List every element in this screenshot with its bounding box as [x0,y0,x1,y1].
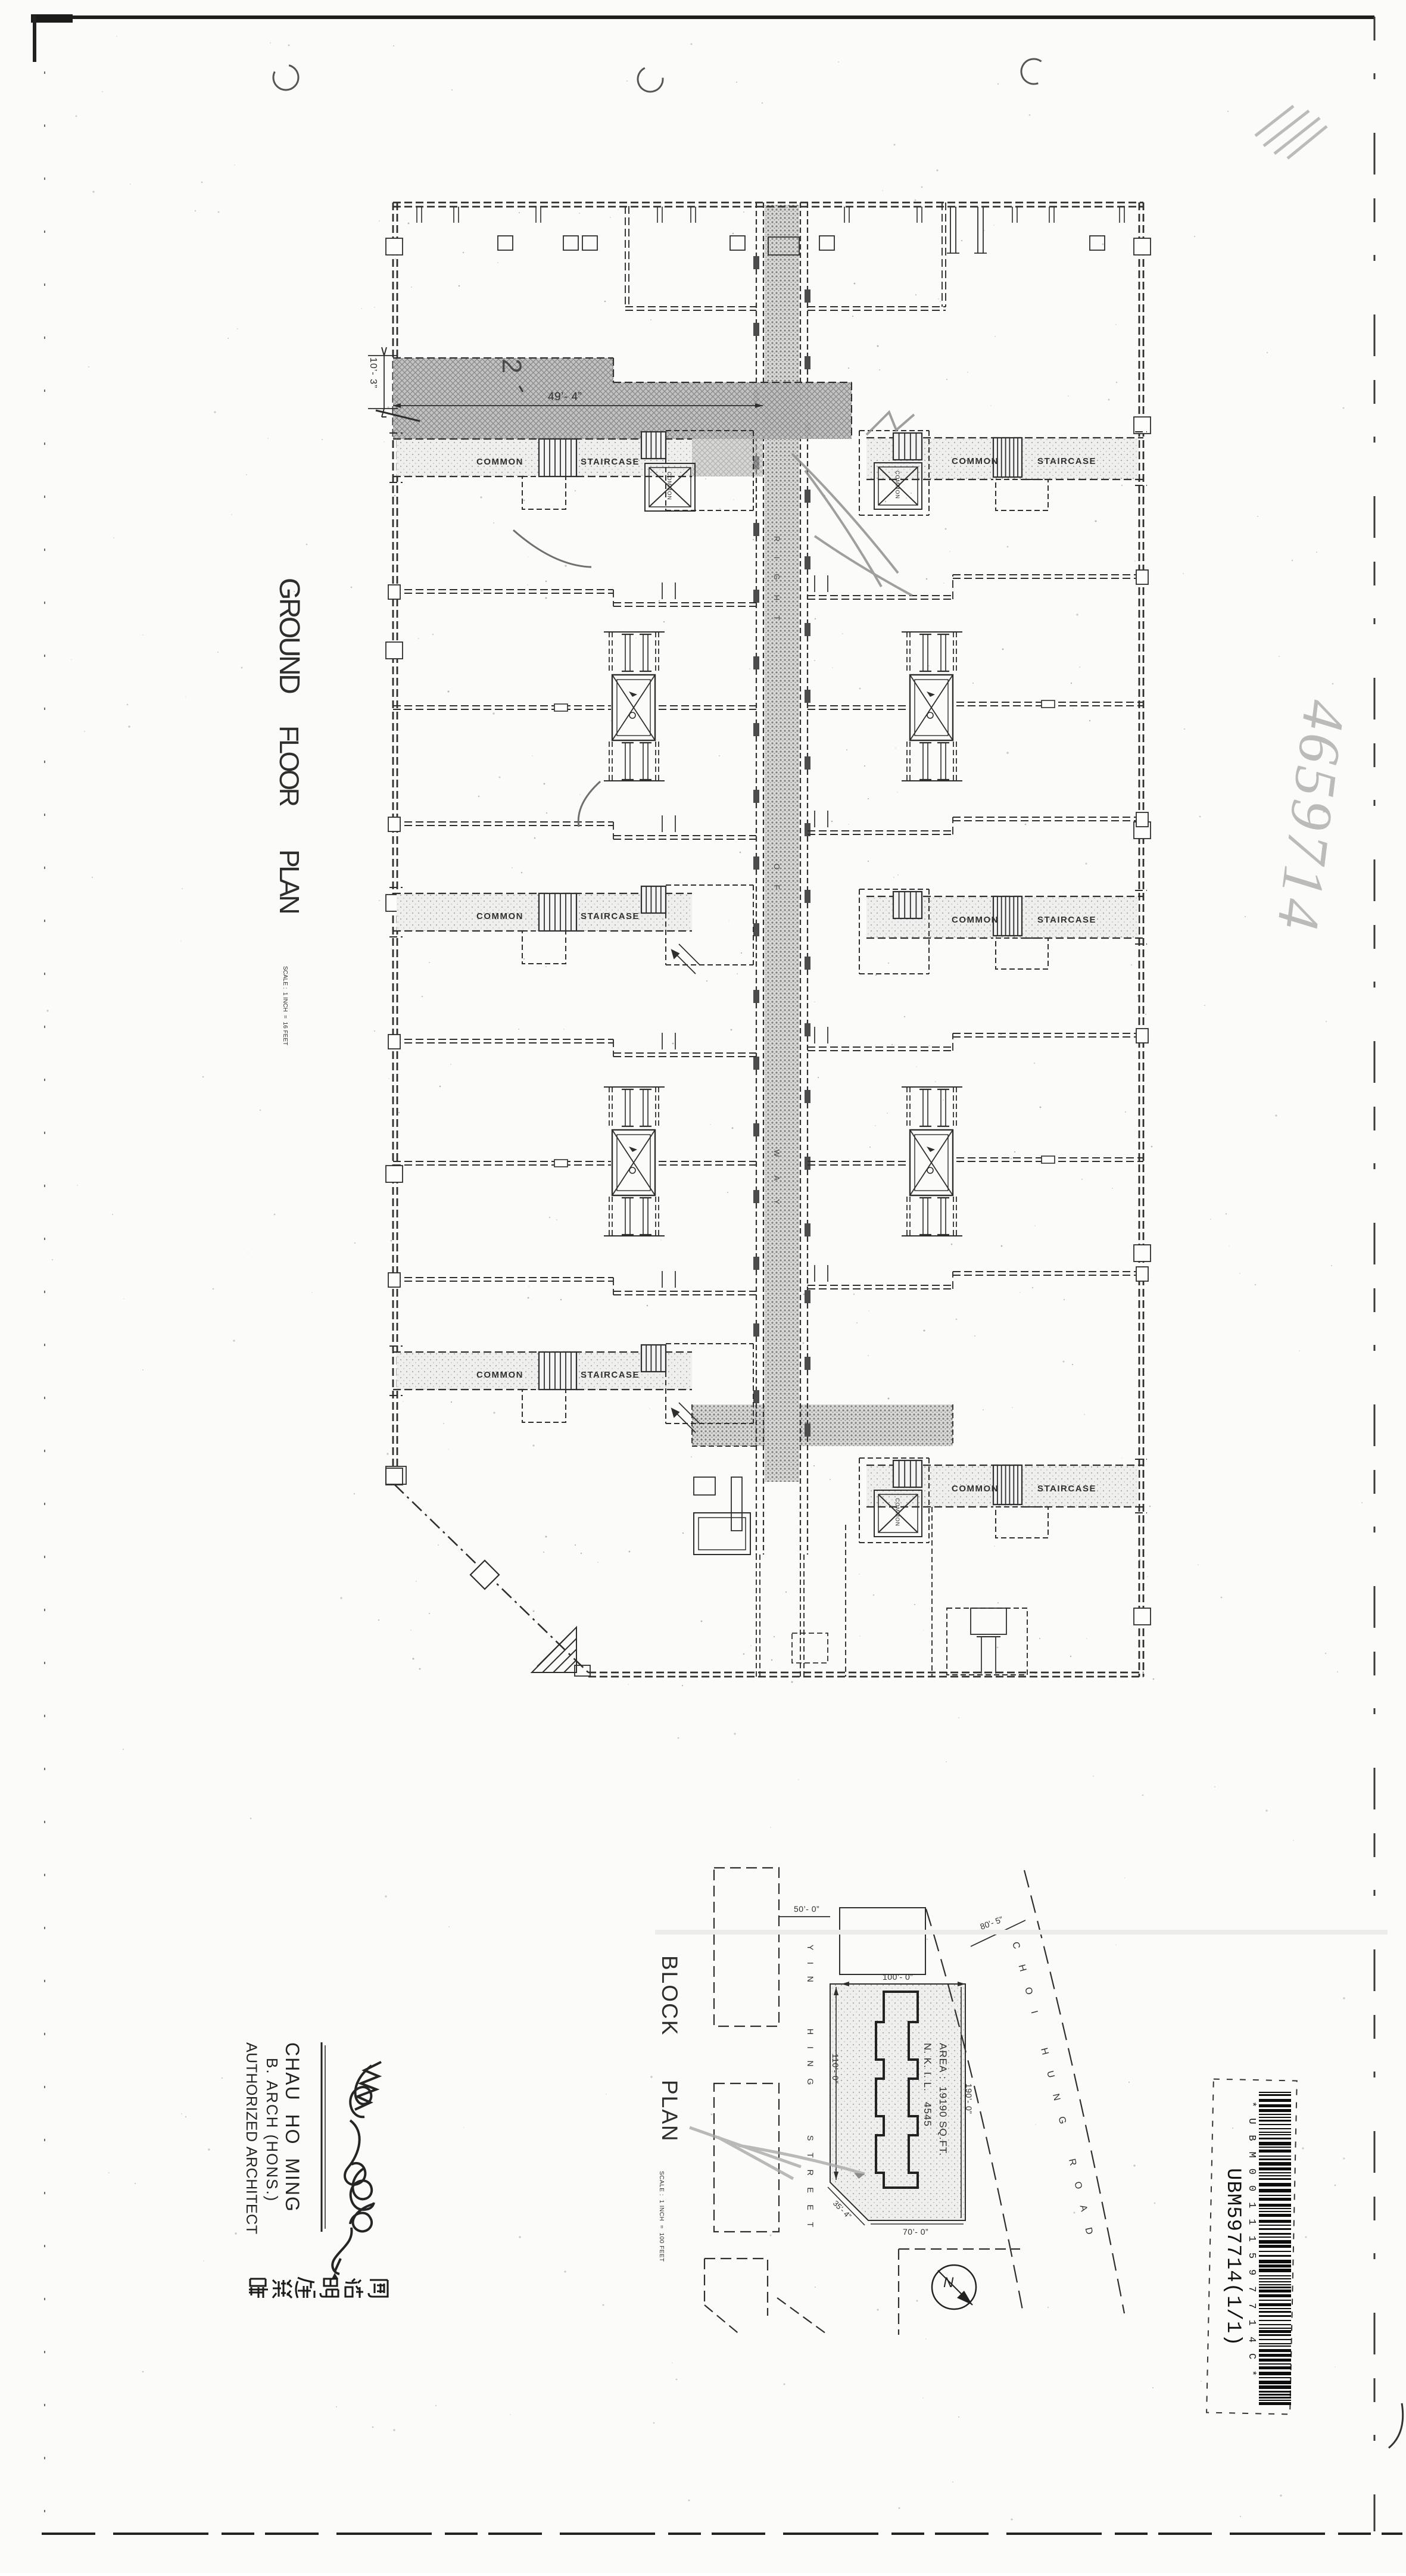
svg-text:SCALE : 1 INCH = 100 FEET: SCALE : 1 INCH = 100 FEET [658,2171,665,2262]
svg-text:S T R E E T: S T R E E T [806,2135,815,2229]
svg-text:49’- 4”: 49’- 4” [548,391,582,403]
svg-text:AUTHORIZED ARCHITECT: AUTHORIZED ARCHITECT [243,2042,260,2235]
svg-text:B. ARCH (HONS.): B. ARCH (HONS.) [263,2058,281,2202]
svg-text:STAIRCASE: STAIRCASE [581,911,640,921]
svg-text:COMMON: COMMON [952,915,999,925]
svg-text:AREA : 19190 SQ.FT.: AREA : 19190 SQ.FT. [937,2043,949,2156]
svg-text:GROUND: GROUND [273,578,305,693]
svg-text:PLAN: PLAN [657,2080,682,2142]
svg-text:COMMON: COMMON [666,472,672,500]
svg-text:COMMON: COMMON [476,1370,523,1380]
svg-text:STAIRCASE: STAIRCASE [1037,456,1096,466]
svg-text:COMMON: COMMON [894,471,900,499]
svg-text:N. K. I. L. 4545: N. K. I. L. 4545 [922,2043,933,2127]
svg-text:UBM597714(1/1): UBM597714(1/1) [1221,2168,1244,2347]
svg-text:STAIRCASE: STAIRCASE [1037,1484,1096,1494]
svg-text:50’- 0”: 50’- 0” [794,1904,819,1914]
svg-text:*UBM00111597714C*: *UBM00111597714C* [1246,2101,1257,2387]
svg-text:R I G H T: R I G H T [772,536,781,624]
svg-text:N: N [943,2275,954,2291]
svg-text:W A Y: W A Y [772,1150,781,1209]
svg-text:STAIRCASE: STAIRCASE [581,1370,640,1380]
svg-text:190’- 0”: 190’- 0” [964,2083,974,2114]
svg-text:FLOOR: FLOOR [274,725,304,806]
svg-text:H I N G: H I N G [806,2029,815,2087]
svg-text:COMMON: COMMON [476,911,523,921]
svg-text:STAIRCASE: STAIRCASE [581,457,640,467]
svg-text:70’- 0”: 70’- 0” [903,2227,928,2237]
svg-text:100’- 0”: 100’- 0” [883,1972,913,1982]
svg-text:10’- 3”: 10’- 3” [368,357,378,388]
svg-text:CHAU HO MING: CHAU HO MING [282,2042,303,2213]
svg-text:Y I N: Y I N [806,1945,815,1985]
svg-text:110’- 0”: 110’- 0” [831,2054,840,2083]
svg-text:2: 2 [497,359,527,373]
svg-text:COMMON: COMMON [952,1484,999,1494]
svg-text:O F: O F [772,864,781,893]
svg-text:COMMON: COMMON [894,1498,900,1527]
svg-text:STAIRCASE: STAIRCASE [1037,915,1096,925]
svg-text:COMMON: COMMON [476,457,523,467]
svg-text:BLOCK: BLOCK [657,1955,682,2036]
svg-text:PLAN: PLAN [274,849,305,912]
svg-text:SCALE : 1 INCH = 16 FEET: SCALE : 1 INCH = 16 FEET [282,966,288,1045]
svg-text:COMMON: COMMON [952,456,999,466]
